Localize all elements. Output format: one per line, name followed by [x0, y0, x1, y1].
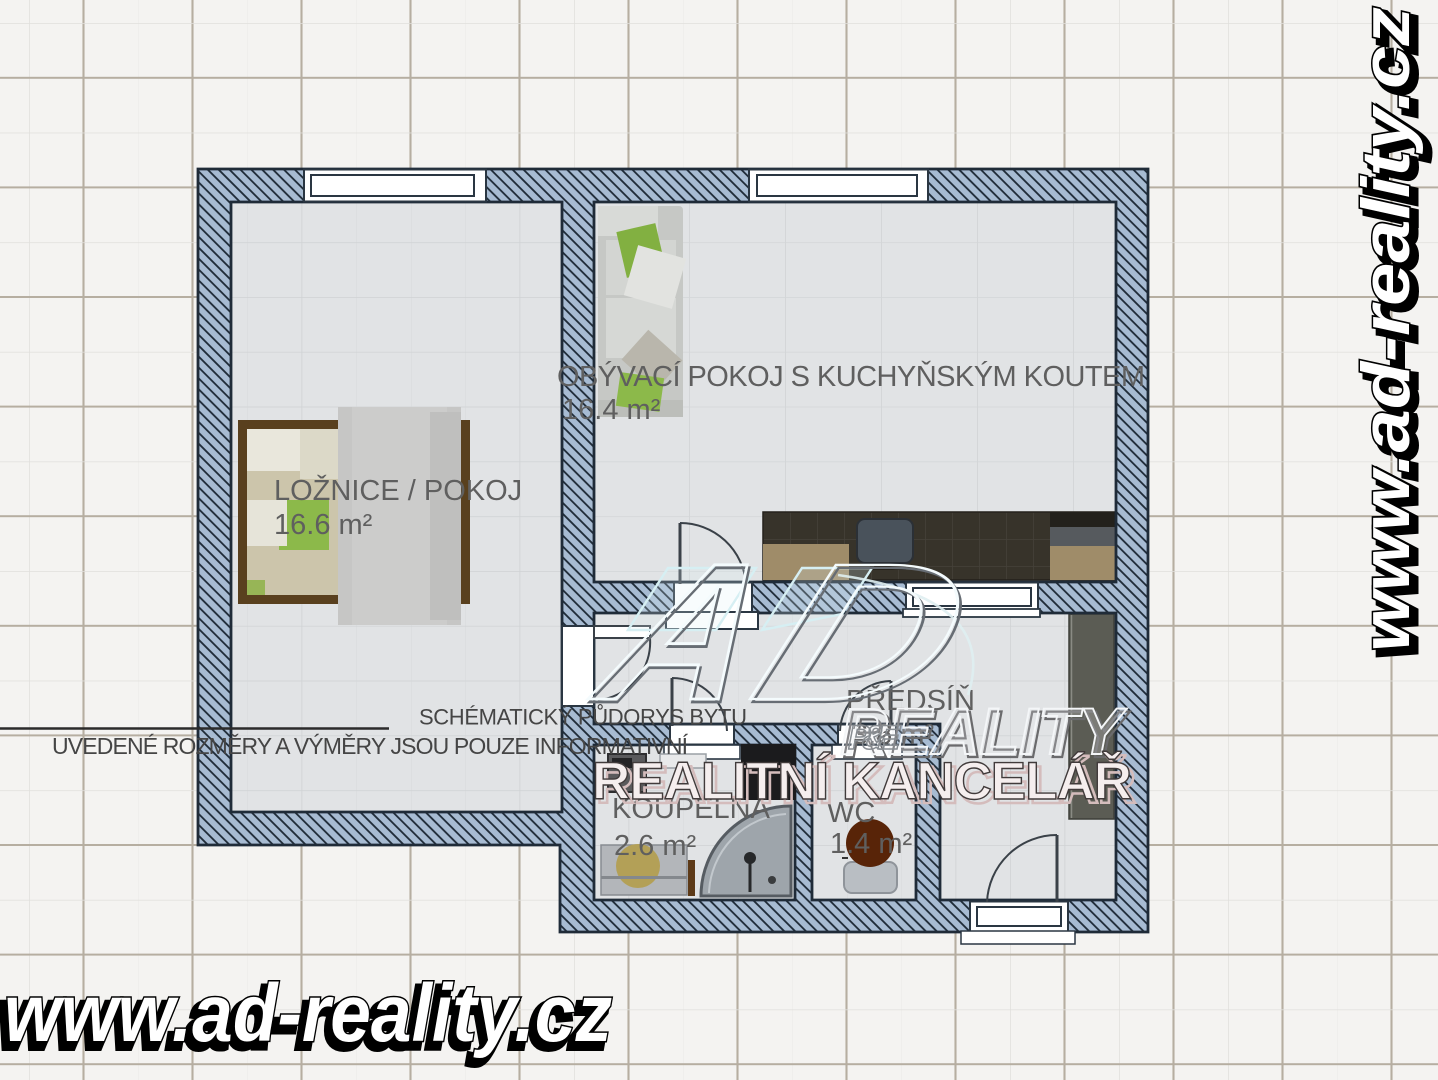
svg-text:P&E: P&E [848, 719, 901, 757]
svg-text:16.6 m²: 16.6 m² [274, 509, 373, 541]
svg-text:OBÝVACÍ POKOJ S KUCHYŇSKÝM KOU: OBÝVACÍ POKOJ S KUCHYŇSKÝM KOUTEM [557, 360, 1145, 393]
svg-text:2.6 m²: 2.6 m² [614, 830, 697, 862]
svg-text:16.4 m²: 16.4 m² [562, 394, 661, 426]
svg-text:REALITNÍ KANCELÁŘ: REALITNÍ KANCELÁŘ [592, 750, 1132, 811]
svg-text:LOŽNICE / POKOJ: LOŽNICE / POKOJ [274, 474, 522, 507]
svg-text:www.ad-reality.cz: www.ad-reality.cz [4, 968, 612, 1059]
svg-text:www.ad-reality.cz: www.ad-reality.cz [1348, 7, 1424, 652]
svg-text:1.4 m²: 1.4 m² [830, 828, 913, 860]
